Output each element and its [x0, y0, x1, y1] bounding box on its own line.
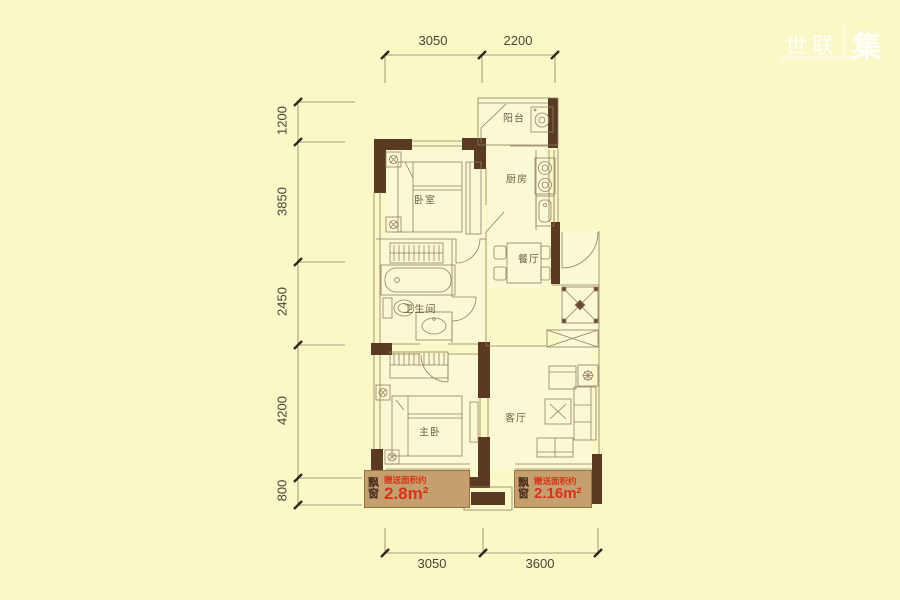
room-label-master-bedroom: 主卧: [419, 424, 441, 439]
dim-top-2200: 2200: [478, 33, 558, 48]
room-label-bedroom: 卧室: [414, 192, 436, 207]
room-label-kitchen: 厨房: [506, 171, 528, 186]
bay-window-right: 飘窗 赠送面积约 2.16m²: [514, 470, 592, 508]
room-label-balcony: 阳台: [503, 110, 525, 125]
bay-window-right-area: 2.16m²: [534, 486, 582, 501]
bay-window-right-tag: 飘窗: [518, 478, 531, 500]
dim-left-2450: 2450: [275, 262, 290, 342]
dim-left-800: 800: [275, 451, 290, 531]
watermark-divider: [843, 24, 844, 54]
dim-left-4200: 4200: [275, 371, 290, 451]
dim-left-3850: 3850: [275, 162, 290, 242]
dim-bottom-3050: 3050: [392, 556, 472, 571]
room-label-living-room: 客厅: [505, 410, 527, 425]
room-label-bathroom: 卫生间: [404, 301, 437, 316]
dim-bottom-3600: 3600: [500, 556, 580, 571]
bay-window-left-tag: 飘窗: [368, 478, 381, 500]
bay-window-left: 飘窗 赠送面积约 2.8m²: [364, 470, 470, 508]
floor-plan-drawing: [0, 0, 900, 600]
dim-top-3050: 3050: [393, 33, 473, 48]
bay-window-left-area: 2.8m²: [384, 485, 428, 502]
bay-window-right-note: 赠送面积约: [534, 477, 582, 486]
floor-plan-page: 3050 2200 1200 3850 2450 4200 800 3050 3…: [0, 0, 900, 600]
room-label-dining: 餐厅: [518, 251, 540, 266]
dim-left-1200: 1200: [275, 81, 290, 161]
bay-window-left-note: 赠送面积约: [384, 476, 428, 485]
watermark-subtext: [780, 56, 856, 61]
watermark-seal: 集: [852, 22, 882, 66]
